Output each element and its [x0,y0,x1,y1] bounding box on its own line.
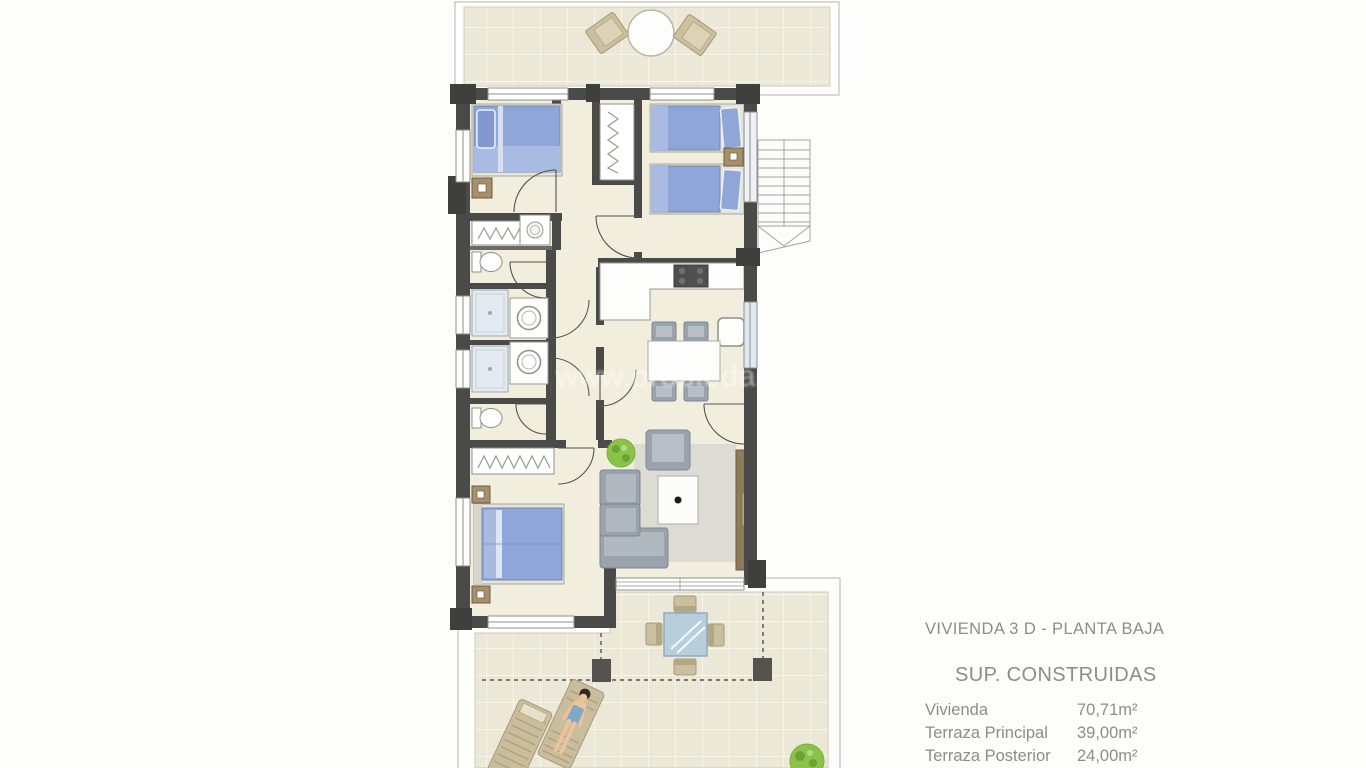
toilet-icon [472,252,502,272]
window [744,302,757,368]
nightstand-icon [472,586,490,603]
window [456,130,470,182]
single-bed-icon [472,104,562,176]
legend: VIVIENDA 3 D - PLANTA BAJA SUP. CONSTRUI… [925,620,1185,768]
nightstand-icon [472,178,492,198]
wardrobe-hangers [600,104,634,180]
surface-value: 39,00m² [1077,722,1138,745]
window [456,296,470,334]
washing-machine-icon [520,215,550,245]
dining-table-icon [648,341,720,381]
surface-value: 70,71m² [1077,699,1138,722]
nightstand-icon [472,486,490,503]
window [744,112,757,202]
vanity-sink-icon [510,298,548,338]
wardrobe-hangers [472,448,554,474]
surface-row: Terraza Principal 39,00m² [925,722,1185,745]
window [456,350,470,388]
nightstand-icon [724,148,743,166]
shower-icon [472,290,508,336]
vanity-sink-icon [510,342,548,384]
plant-icon [607,439,635,467]
window [650,88,714,100]
round-table-icon [628,10,674,56]
pergola-post-icon [753,658,772,681]
armchair-icon [646,430,690,470]
window [456,498,470,566]
surface-row: Terraza Posterior 24,00m² [925,745,1185,768]
coffee-table-icon [658,476,698,524]
plan-title: VIVIENDA 3 D - PLANTA BAJA [925,620,1185,639]
shower-icon [472,346,508,392]
surface-label: Terraza Posterior [925,745,1077,768]
surface-label: Vivienda [925,699,1077,722]
fridge-icon [718,318,744,346]
sliding-glass-door [616,578,744,590]
pergola-post-icon [592,659,611,682]
surface-table: Vivienda 70,71m² Terraza Principal 39,00… [925,699,1185,768]
surface-section-title: SUP. CONSTRUIDAS [955,664,1185,687]
window [488,616,574,628]
surface-row: Vivienda 70,71m² [925,699,1185,722]
window [488,88,568,100]
surface-label: Terraza Principal [925,722,1077,745]
twin-bed-icon [650,164,744,214]
stove-icon [674,265,708,287]
double-bed-icon [474,504,564,584]
twin-bed-icon [650,104,744,152]
surface-value: 24,00m² [1077,745,1138,768]
toilet-icon [472,408,502,428]
terraza-posterior [455,2,839,95]
floor-plan-page: www.propiedades.es VIVIENDA 3 D - PLANTA… [0,0,1366,768]
